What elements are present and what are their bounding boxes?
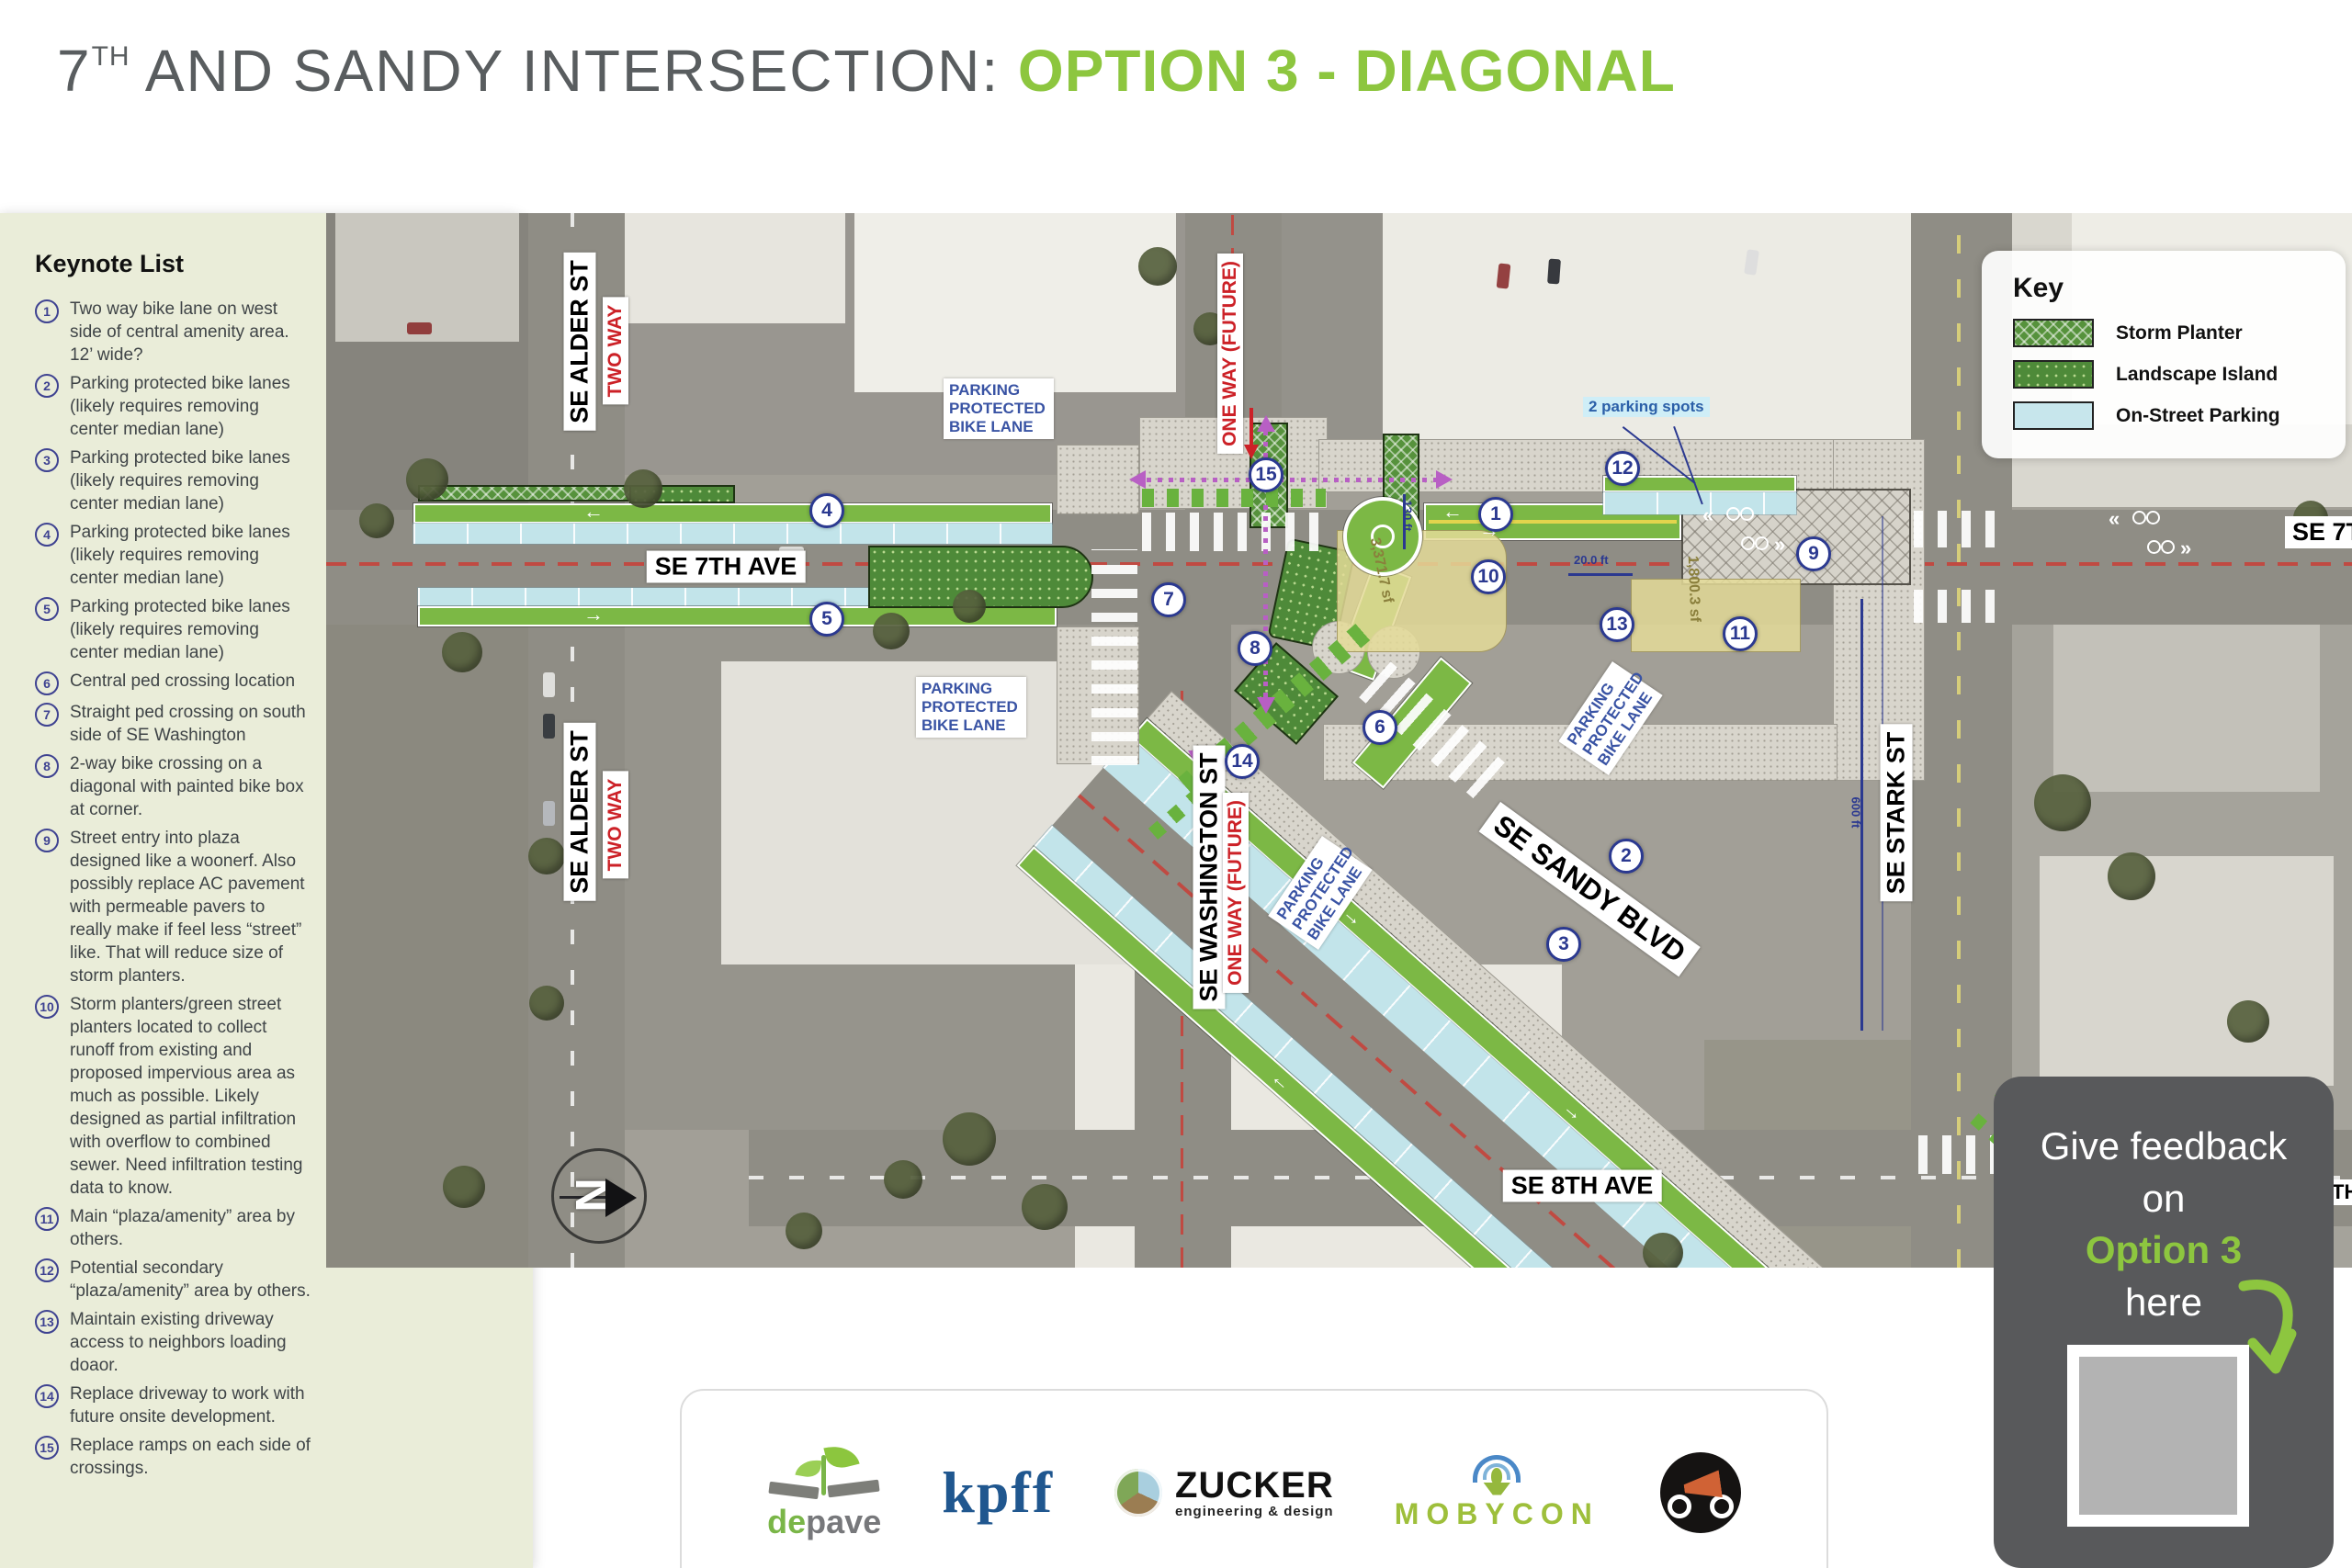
- tree: [1022, 1184, 1068, 1230]
- landscape-island-swatch: [2013, 360, 2094, 389]
- lane-arrow: ←: [1442, 502, 1463, 522]
- keynote-item: 1Two way bike lane on west side of centr…: [35, 298, 311, 367]
- city-block: [326, 625, 528, 1268]
- keynote-item: 5Parking protected bike lanes (likely re…: [35, 595, 311, 664]
- car: [1547, 259, 1561, 285]
- dimension-label: 130 ft: [1400, 501, 1414, 532]
- building-roof: [625, 213, 845, 323]
- one-way-arrow: [1249, 408, 1253, 446]
- depave-leaf: [796, 1457, 822, 1479]
- keynote-marker-3: 3: [1546, 927, 1581, 962]
- annotation-parking-protected-north: PARKING PROTECTED BIKE LANE: [944, 378, 1054, 439]
- keynote-item: 11Main “plaza/amenity” area by others.: [35, 1205, 311, 1251]
- keynote-marker-6: 6: [1363, 710, 1397, 745]
- depave-pavement: [769, 1482, 820, 1499]
- tree: [406, 458, 448, 501]
- building-roof: [2053, 608, 2320, 792]
- tree: [953, 590, 986, 623]
- ped-route-dots: [1263, 500, 1268, 697]
- keynote-item: 3Parking protected bike lanes (likely re…: [35, 446, 311, 515]
- keynote-marker-14: 14: [1225, 744, 1260, 779]
- annotation-parking-protected-west: PARKING PROTECTED BIKE LANE: [916, 677, 1026, 738]
- tree: [529, 986, 564, 1021]
- keynote-marker-1: 1: [1478, 497, 1513, 532]
- lane-arrow: →: [583, 604, 604, 625]
- car: [543, 714, 555, 739]
- kpff-logo: kpff: [942, 1459, 1054, 1527]
- one-way-arrowhead: [1244, 445, 1259, 459]
- car: [407, 322, 432, 334]
- tree: [2227, 1000, 2269, 1043]
- crosswalk: [1914, 590, 2009, 623]
- keynote-marker-10: 10: [1471, 559, 1506, 594]
- keynote-item: 82-way bike crossing on a diagonal with …: [35, 752, 311, 821]
- direction-label-one-way-south: ONE WAY (FUTURE): [1223, 793, 1249, 993]
- crosswalk: [1091, 549, 1137, 765]
- sidewalk-pavers: [1057, 445, 1139, 514]
- title-main: 7TH AND SANDY INTERSECTION:: [57, 38, 1018, 104]
- tree: [873, 613, 910, 649]
- keynote-item: 14Replace driveway to work with future o…: [35, 1382, 311, 1428]
- direction-label-two-way-north: TWO WAY: [603, 298, 628, 405]
- key-heading: Key: [2013, 273, 2346, 304]
- mobycon-head: [1491, 1468, 1502, 1484]
- page-title: 7TH AND SANDY INTERSECTION: OPTION 3 - D…: [57, 37, 1676, 105]
- on-street-parking-swatch: [2013, 401, 2094, 430]
- lane-dash: [1957, 213, 1961, 1268]
- keynote-list: 1Two way bike lane on west side of centr…: [35, 298, 311, 1485]
- zucker-tagline: engineering & design: [1175, 1504, 1334, 1519]
- ped-arrow: [1257, 697, 1275, 714]
- tree: [943, 1112, 996, 1166]
- partner-logos: depave kpff ZUCKER engineering & design …: [680, 1389, 1828, 1568]
- parking-7th-nw: [413, 524, 1052, 544]
- bike-badge-icon: [1660, 1452, 1741, 1533]
- keynote-item: 15Replace ramps on each side of crossing…: [35, 1434, 311, 1480]
- tree: [528, 838, 565, 874]
- tree: [2108, 852, 2155, 900]
- ped-arrow: [1436, 470, 1453, 489]
- depave-sprout-icon: [769, 1444, 879, 1503]
- keynote-item: 6Central ped crossing location: [35, 670, 311, 695]
- lane-arrow: ←: [583, 502, 604, 522]
- sharrow-chevron: »: [1774, 535, 1785, 555]
- secondary-plaza-area: [1631, 579, 1801, 652]
- sharrow-chevron: »: [2180, 538, 2191, 558]
- keynote-item: 4Parking protected bike lanes (likely re…: [35, 521, 311, 590]
- tree: [786, 1213, 822, 1249]
- zucker-logo: ZUCKER engineering & design: [1114, 1467, 1334, 1519]
- zucker-text: ZUCKER engineering & design: [1175, 1467, 1334, 1519]
- bike-wheel: [1710, 1495, 1734, 1518]
- keynote-marker-7: 7: [1151, 582, 1186, 617]
- keynote-heading: Keynote List: [35, 250, 184, 278]
- ped-arrow: [1257, 415, 1275, 432]
- mobycon-body: [1483, 1483, 1510, 1495]
- zucker-wordmark: ZUCKER: [1175, 1467, 1334, 1504]
- north-arrow-head: [605, 1179, 637, 1217]
- tree: [2034, 774, 2091, 831]
- street-label-se-7th: SE 7TH AVE: [647, 551, 806, 583]
- bike-crossing-dashes: [1142, 489, 1326, 507]
- tree: [1643, 1233, 1683, 1268]
- keynote-item: 7Straight ped crossing on south side of …: [35, 701, 311, 747]
- street-label-alder-south: SE ALDER ST: [564, 723, 596, 901]
- annotation-2-parking-spots: 2 parking spots: [1583, 397, 1710, 417]
- crosswalk: [1914, 511, 2009, 547]
- dimension-label: 600 ft: [1849, 797, 1862, 829]
- bike-org-logo: [1660, 1452, 1741, 1533]
- dimension-line: [1568, 573, 1633, 576]
- street-label-se-8th: SE 8TH AVE: [1503, 1170, 1662, 1202]
- keynote-item: 13Maintain existing driveway access to n…: [35, 1308, 311, 1377]
- bike-symbol: [2147, 540, 2175, 552]
- mobycon-icon: [1455, 1455, 1538, 1495]
- tree: [884, 1160, 922, 1199]
- keynote-item: 10Storm planters/green street planters l…: [35, 993, 311, 1200]
- title-option: OPTION 3 - DIAGONAL: [1018, 38, 1676, 104]
- keynote-item: 2Parking protected bike lanes (likely re…: [35, 372, 311, 441]
- tree: [359, 503, 394, 538]
- building-roof: [2040, 856, 2334, 1086]
- kpff-wordmark: kpff: [942, 1459, 1054, 1527]
- mobycon-logo: MOBYCON: [1395, 1455, 1600, 1531]
- bike-lane-7th-nw: [413, 503, 1052, 524]
- keynote-marker-4: 4: [809, 493, 844, 528]
- building-roof: [854, 213, 1176, 392]
- keynote-item: 12Potential secondary “plaza/amenity” ar…: [35, 1257, 311, 1303]
- tree: [624, 469, 662, 508]
- street-label-se-7th-east: SE 7TH: [2285, 516, 2352, 548]
- keynote-marker-2: 2: [1609, 839, 1644, 874]
- tree: [442, 632, 482, 672]
- keynote-marker-11: 11: [1723, 616, 1758, 651]
- bike-wheel: [1668, 1495, 1691, 1518]
- keynote-marker-15: 15: [1249, 457, 1283, 492]
- street-label-stark: SE STARK ST: [1881, 725, 1913, 902]
- depave-logo: depave: [767, 1444, 881, 1541]
- crosswalk: [1142, 513, 1326, 551]
- north-arrow: N: [551, 1148, 647, 1244]
- center-yellow-line: [1429, 520, 1677, 524]
- feedback-panel: Give feedback on Option 3 here: [1994, 1077, 2334, 1568]
- keynote-item: 9Street entry into plaza designed like a…: [35, 827, 311, 987]
- depave-wordmark: depave: [767, 1503, 881, 1541]
- sharrow-chevron: «: [1702, 505, 1713, 525]
- dimension-label: 20.0 ft: [1574, 553, 1609, 567]
- keynote-marker-8: 8: [1238, 631, 1272, 666]
- key-row-landscape-island: Landscape Island: [2013, 360, 2346, 389]
- street-label-alder-north: SE ALDER ST: [564, 253, 596, 431]
- depave-stem: [821, 1455, 826, 1495]
- keynote-marker-13: 13: [1600, 607, 1634, 642]
- mobycon-wordmark: MOBYCON: [1395, 1497, 1600, 1531]
- street-label-washington: SE WASHINGTON ST: [1193, 745, 1226, 1009]
- depave-leaf: [824, 1440, 860, 1471]
- direction-label-two-way-south: TWO WAY: [603, 772, 628, 879]
- ped-arrow: [1129, 470, 1146, 489]
- map-key: Key Storm Planter Landscape Island On-St…: [1982, 251, 2346, 458]
- keynote-marker-9: 9: [1796, 536, 1831, 571]
- qr-code-placeholder: [2067, 1345, 2249, 1527]
- keynote-marker-5: 5: [809, 602, 844, 637]
- bike-symbol: [1726, 507, 1754, 519]
- ped-route-dots: [1147, 478, 1436, 482]
- bike-symbol: [2132, 511, 2160, 523]
- keynote-marker-12: 12: [1605, 451, 1640, 486]
- engagement-board: 7TH AND SANDY INTERSECTION: OPTION 3 - D…: [0, 0, 2352, 1568]
- zucker-icon: [1114, 1469, 1162, 1517]
- tree: [443, 1166, 485, 1208]
- key-row-storm-planter: Storm Planter: [2013, 319, 2346, 347]
- depave-pavement: [828, 1480, 880, 1498]
- sharrow-chevron: «: [2109, 509, 2120, 529]
- street-label-sandy: SE SANDY BLVD: [1479, 802, 1701, 976]
- plaza-area-label: 1,800.3 sf: [1684, 556, 1703, 623]
- storm-planter-swatch: [2013, 319, 2094, 347]
- key-row-on-street-parking: On-Street Parking: [2013, 401, 2346, 430]
- bike-symbol: [1741, 536, 1769, 548]
- storm-planter-strip: [418, 485, 648, 502]
- direction-label-one-way-north: ONE WAY (FUTURE): [1217, 254, 1243, 454]
- car: [543, 672, 555, 697]
- tree: [1138, 247, 1177, 286]
- car: [543, 801, 555, 826]
